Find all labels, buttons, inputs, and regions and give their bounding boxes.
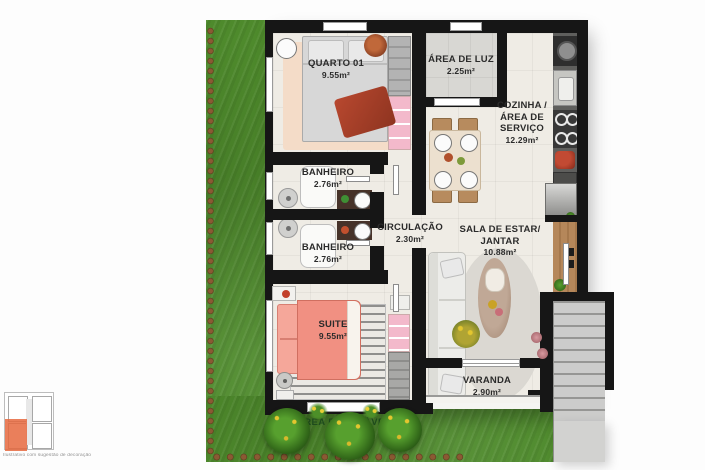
room-area: 2.76m²: [268, 179, 388, 191]
wall-between-bathrooms: [265, 209, 384, 220]
wall-varanda-right-top: [520, 358, 540, 368]
wall-bathroom1-right: [370, 192, 384, 209]
bush: [325, 412, 375, 460]
quarto-plant: [364, 34, 387, 57]
flower-cluster: [362, 404, 380, 418]
bathroom2-shower: [278, 218, 298, 238]
key-plan-inset: [4, 392, 54, 450]
room-area: 2.90m²: [427, 387, 547, 399]
bush: [264, 408, 310, 454]
wall-central-lower: [412, 248, 426, 284]
room-label-banheiro2: BANHEIRO 2.76m²: [268, 242, 388, 265]
kitchen-microwave: [553, 36, 577, 66]
room-area: 2.76m²: [268, 254, 388, 266]
entry-door-handle: [569, 248, 574, 256]
wall-quarto-bottom: [265, 152, 388, 165]
wall-outer-top: [265, 20, 588, 33]
room-label-sala: SALA DE ESTAR/ JANTAR 10.88m²: [440, 224, 560, 259]
door-suite: [393, 284, 399, 312]
kitchen-cabinet-wall: [545, 215, 577, 222]
entry-door: [563, 243, 569, 285]
room-label-varanda: VARANDA 2.90m²: [427, 375, 547, 398]
room-name: SALA DE ESTAR/: [440, 224, 560, 236]
entry-door-handle: [569, 260, 574, 268]
room-name: BANHEIRO: [268, 167, 388, 179]
room-label-quarto01: QUARTO 01 9.55m²: [276, 58, 396, 81]
door-quarto: [393, 165, 399, 195]
wall-varanda-left: [426, 358, 462, 368]
wall-decor-dot: [537, 348, 548, 359]
flower-pot: [452, 320, 480, 348]
staircase-landing: [553, 421, 605, 462]
quarto-nightstand: [276, 38, 297, 59]
dining-chair: [432, 189, 452, 203]
suite-wardrobe-shelves: [388, 352, 410, 400]
window-quarto-top: [323, 22, 367, 31]
wall-suite-right: [412, 284, 426, 402]
window-quarto-left: [266, 57, 273, 112]
room-name: ÁREA DE LUZ: [401, 54, 521, 66]
room-name: ÁREA DE: [462, 112, 582, 124]
room-name: QUARTO 01: [276, 58, 396, 70]
room-label-area-de-luz: ÁREA DE LUZ 2.25m²: [401, 54, 521, 77]
room-label-cozinha: COZINHA / ÁREA DE SERVIÇO 12.29m²: [462, 100, 582, 146]
room-area: 10.88m²: [440, 247, 560, 259]
room-name: JANTAR: [440, 236, 560, 248]
window-suite-left: [266, 300, 273, 372]
coffee-table: [478, 258, 511, 338]
window-area-de-luz-top: [450, 22, 482, 31]
floor-plan-image: QUARTO 01 9.55m² ÁREA DE LUZ 2.25m² COZI…: [0, 0, 705, 470]
key-plan-highlighted-unit: [5, 419, 27, 451]
room-area: 2.25m²: [401, 66, 521, 78]
room-area: 12.29m²: [462, 135, 582, 147]
dining-chair: [458, 189, 478, 203]
flower-cluster: [308, 403, 328, 419]
wall-outer-right: [577, 20, 588, 301]
bathroom1-shower: [278, 188, 298, 208]
room-label-suite: SUITE 9.55m²: [273, 319, 393, 342]
room-area: 9.55m²: [276, 70, 396, 82]
wall-decor-dot: [531, 332, 542, 343]
room-name: VARANDA: [427, 375, 547, 387]
room-area: 9.55m²: [273, 331, 393, 343]
room-name: COZINHA /: [462, 100, 582, 112]
pebble-border-left: [205, 26, 216, 454]
wall-suite-top: [265, 270, 388, 284]
bathroom1-vanity: [337, 190, 372, 209]
kitchen-basket: [555, 151, 575, 169]
room-name: SERVIÇO: [462, 123, 582, 135]
room-name: SUITE: [273, 319, 393, 331]
inset-caption: Ilustrativo com sugestão de decoração: [3, 453, 91, 458]
varanda-sliding-door: [462, 359, 520, 367]
room-label-banheiro1: BANHEIRO 2.76m²: [268, 167, 388, 190]
staircase-treads: [553, 301, 605, 421]
suite-fan: [276, 372, 293, 389]
wall-stair-right: [605, 292, 614, 390]
suite-side-box: [276, 390, 294, 400]
bush: [378, 408, 422, 452]
kitchen-cabinet-end: [545, 183, 577, 216]
suite-dresser: [272, 286, 296, 301]
